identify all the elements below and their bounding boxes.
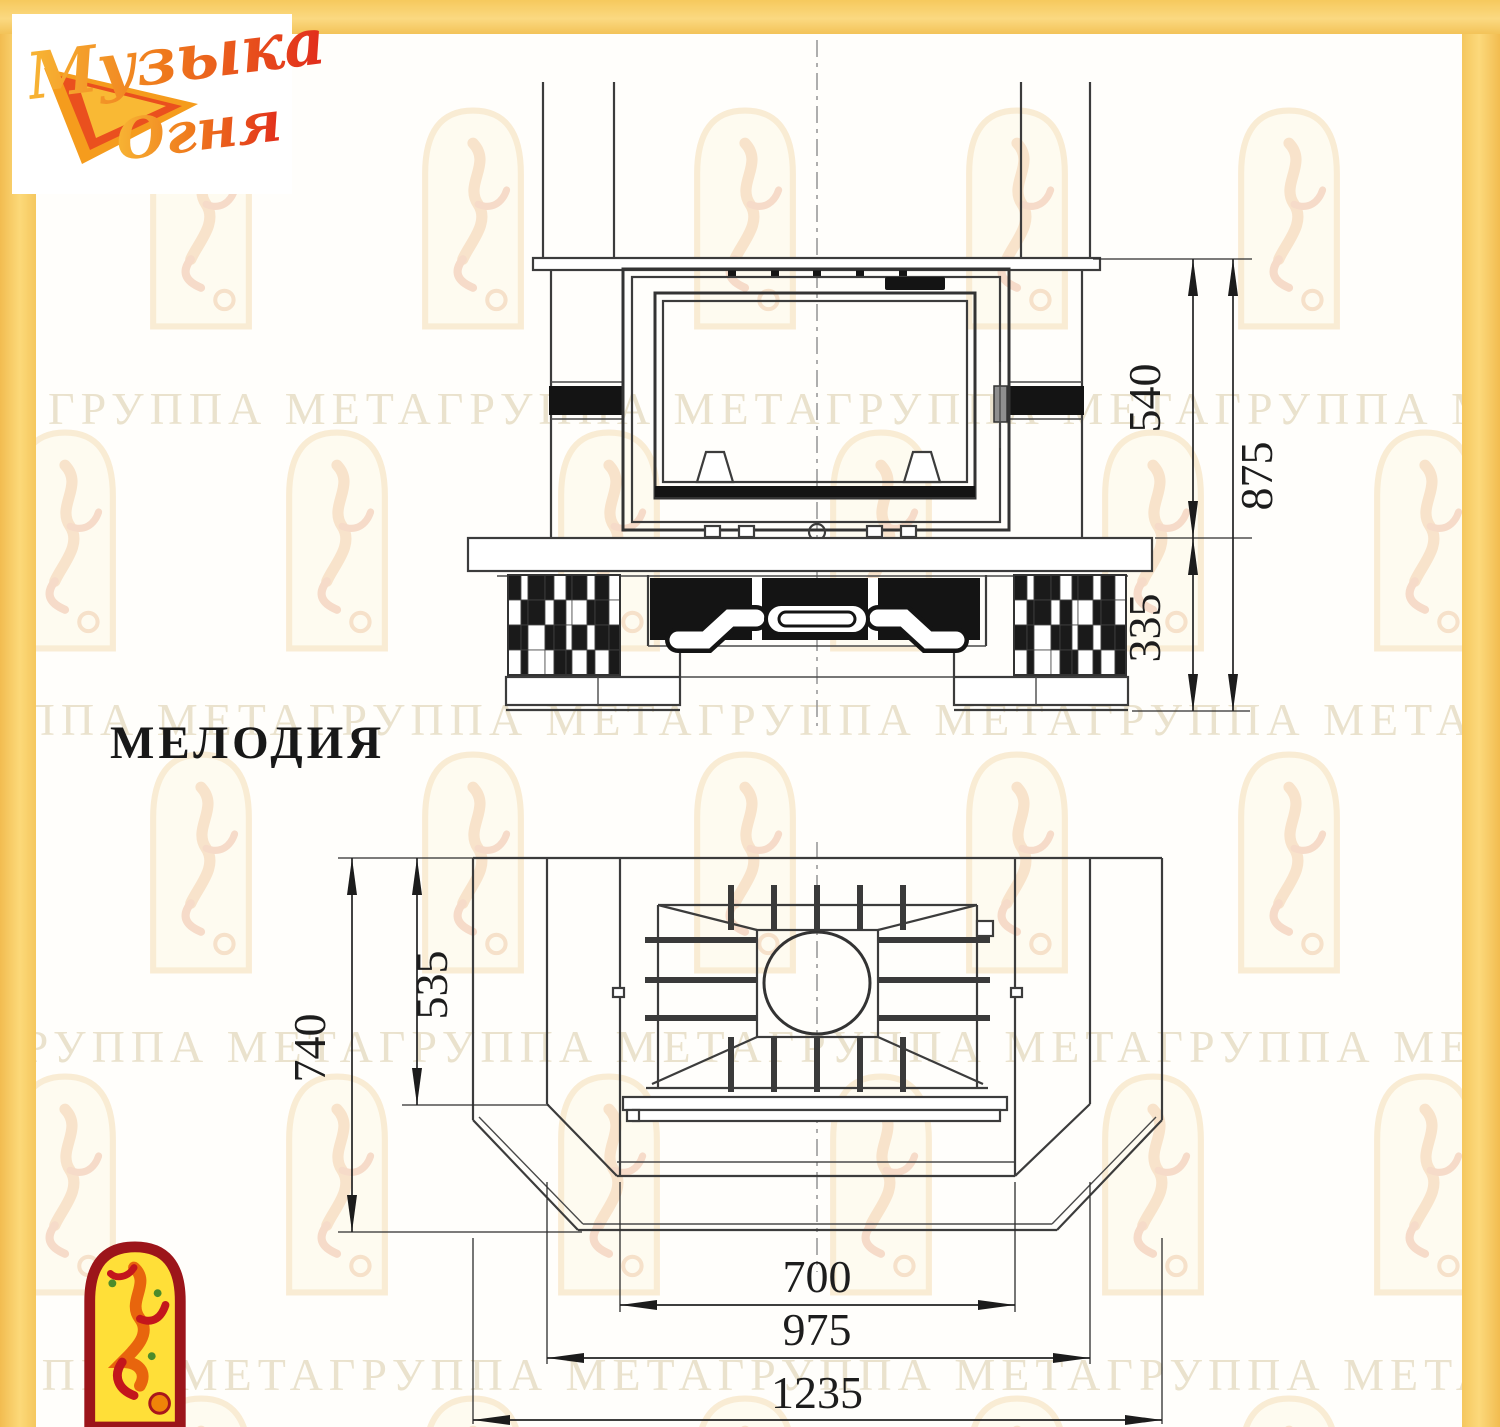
right-column-insert [1009,386,1084,415]
dim-label-overall-depth: 740 [284,1014,335,1083]
frame-border-left [0,0,36,1427]
dim-label-firebox-height: 540 [1119,364,1170,433]
plan-view-drawing [473,842,1162,1272]
fireplace-technical-drawing: 540 335 875 [0,0,1500,1427]
door-sill [655,486,975,497]
mantel-shelf [468,538,1152,571]
front-bar [623,1097,1007,1110]
base-niche [648,575,986,677]
sun-dot [150,1394,170,1414]
andiron-right [904,452,940,482]
dim-label-inner-depth: 535 [406,951,457,1020]
firebird-mascot [82,1240,188,1427]
mosaic-pillar-right [1014,575,1126,675]
dim-label-mid-width: 975 [783,1304,852,1355]
front-view-drawing [468,40,1152,726]
frame-border-right [1462,0,1500,1427]
dim-label-overall-width: 1235 [771,1367,863,1418]
firebox-door [623,269,1009,530]
dim-label-overall-height: 875 [1231,442,1282,511]
model-title: МЕЛОДИЯ [110,716,385,770]
brand-logo: Музыка Огня [12,14,292,194]
front-dimensions: 540 335 875 [1093,259,1282,711]
mosaic-pillar-left [508,575,620,675]
center-slot [766,604,868,634]
andiron-left [697,452,733,482]
dim-label-opening-width: 700 [783,1251,852,1302]
side-tab [977,921,993,936]
left-column-insert [549,386,623,415]
page: ГРУППА МЕТАГРУППА МЕТАГРУППА МЕТАГРУППА … [0,0,1500,1427]
brand-label [885,277,945,290]
firebox-plan [623,885,1007,1121]
dim-label-base-height: 335 [1119,594,1170,663]
plan-dimensions: 740 535 700 975 1235 [284,858,1162,1425]
